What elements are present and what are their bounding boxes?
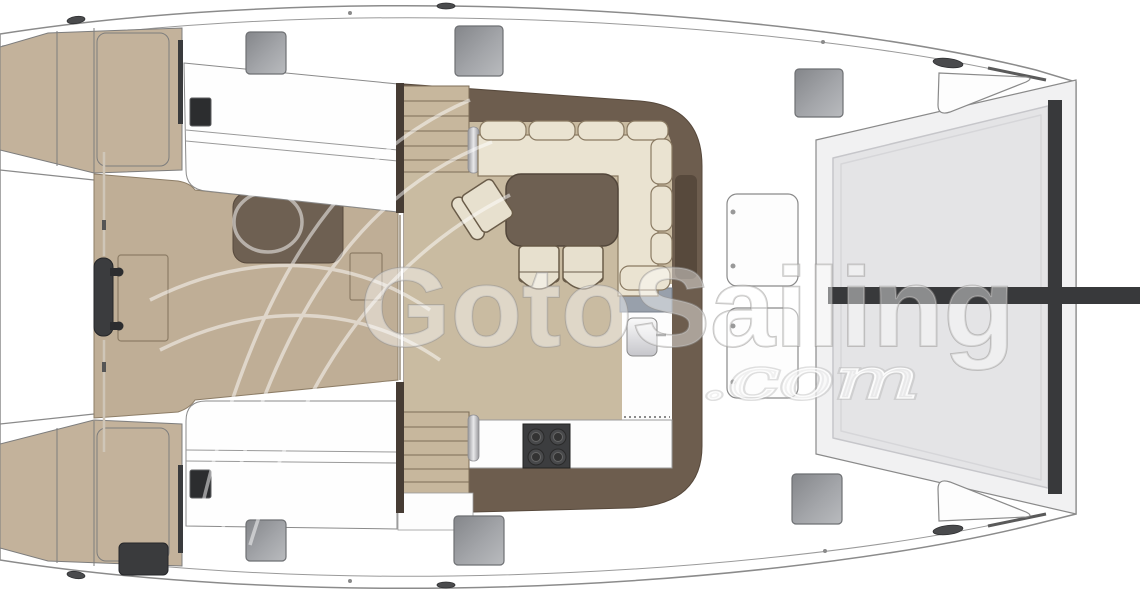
cabin-hatch-dark bbox=[190, 98, 211, 126]
forestay-fitting bbox=[102, 362, 106, 372]
deck-plan-drawing: GotoSailing .com .com bbox=[0, 0, 1140, 592]
mast-bolt bbox=[115, 268, 124, 277]
boarding-step-pad bbox=[119, 543, 168, 575]
stanchion-dot bbox=[348, 11, 352, 15]
dining-table bbox=[506, 174, 618, 246]
bow-deck-panel bbox=[97, 428, 169, 561]
mast-bolt bbox=[115, 322, 124, 331]
hull-window-dark bbox=[178, 40, 183, 124]
stairs-port bbox=[403, 412, 469, 496]
stairs-starboard bbox=[403, 86, 469, 172]
catamaran-deck-plan: GotoSailing .com .com bbox=[0, 0, 1140, 592]
stanchion-dot bbox=[823, 549, 827, 553]
salon-front-window-port bbox=[396, 382, 404, 513]
compression-post bbox=[468, 415, 479, 461]
watermark-suffix: .com bbox=[700, 347, 920, 412]
forestay-fitting bbox=[102, 220, 106, 230]
bow-deck-panel bbox=[97, 33, 169, 166]
stanchion-dot bbox=[348, 579, 352, 583]
stanchion-dot bbox=[821, 40, 825, 44]
berth-port bbox=[186, 401, 397, 529]
hull-window-dark bbox=[178, 465, 183, 553]
berth-starboard bbox=[184, 63, 398, 212]
